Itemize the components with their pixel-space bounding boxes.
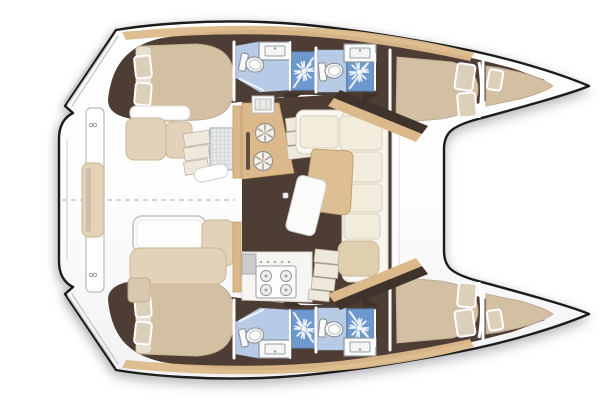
galley-handle bbox=[246, 132, 250, 170]
salon bbox=[233, 95, 399, 305]
catamaran-floor-plan bbox=[0, 0, 600, 400]
salon-front-wall bbox=[392, 118, 399, 282]
floor-plan-canvas bbox=[0, 0, 600, 400]
cockpit-table bbox=[133, 216, 206, 253]
sofa-chaise bbox=[338, 241, 379, 276]
bench-cushion bbox=[82, 163, 104, 237]
floor-fitting bbox=[283, 193, 288, 198]
salon-aft-wall bbox=[233, 222, 241, 292]
port-cockpit-settee bbox=[126, 118, 166, 160]
cockpit-stool bbox=[128, 278, 150, 302]
bench-cushion-seam bbox=[86, 168, 91, 232]
galley-appliance-top bbox=[255, 99, 271, 110]
stove-counter bbox=[242, 252, 312, 302]
sofa-cushion bbox=[344, 214, 380, 239]
salon-aft-wall bbox=[233, 106, 241, 178]
sofa-cushion bbox=[300, 116, 338, 148]
counter-sink bbox=[242, 254, 256, 274]
